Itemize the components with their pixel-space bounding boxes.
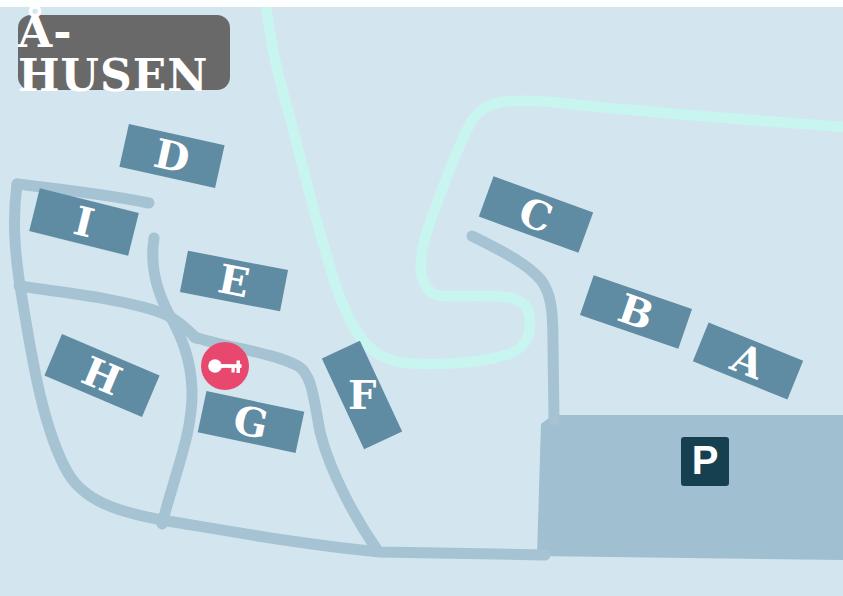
key-marker [201,342,249,390]
road [472,236,554,420]
parking-sign-label: P [692,440,719,483]
title-plate: Å-HUSEN [18,15,230,90]
building-label: A [726,337,770,386]
building-label: F [348,375,376,415]
building-label: B [614,288,659,337]
campus-map: D I E C B A H G F P [0,0,843,596]
building-label: C [514,190,558,238]
building-label: E [215,258,253,303]
key-icon [207,355,243,377]
building-label: D [151,133,194,180]
page-title: Å-HUSEN [18,8,230,98]
parking-sign: P [681,437,729,486]
map-top-border [0,0,843,7]
building-label: I [70,200,98,243]
building-label: G [230,399,272,445]
